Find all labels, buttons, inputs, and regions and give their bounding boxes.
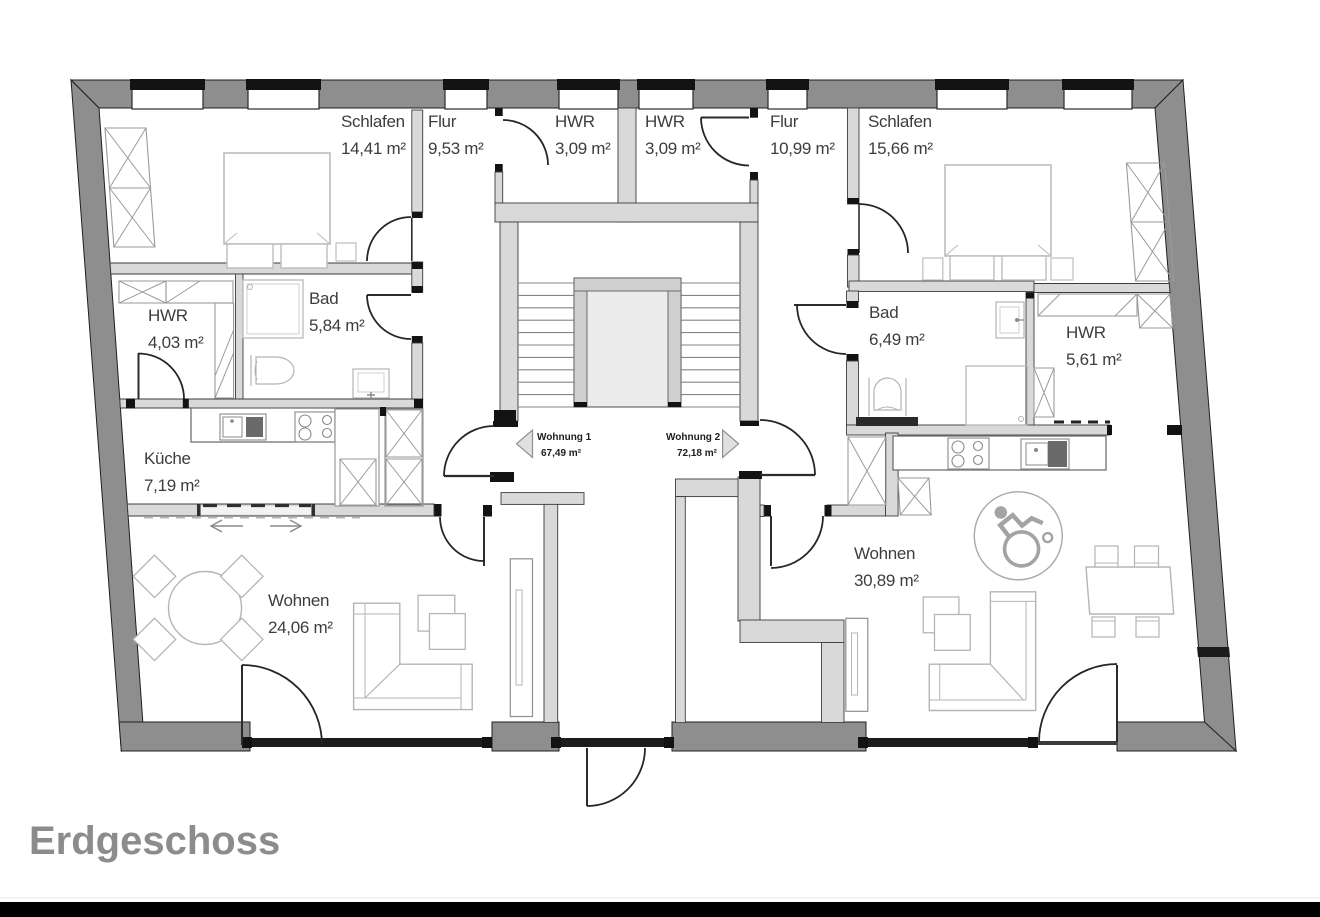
svg-text:Küche: Küche: [144, 449, 191, 468]
svg-text:Flur: Flur: [428, 112, 457, 131]
svg-text:72,18 m²: 72,18 m²: [677, 448, 718, 459]
svg-text:Erdgeschoss: Erdgeschoss: [29, 819, 280, 863]
svg-text:Schlafen: Schlafen: [868, 112, 932, 131]
svg-text:Wohnen: Wohnen: [854, 544, 915, 563]
svg-text:Schlafen: Schlafen: [341, 112, 405, 131]
svg-text:9,53 m²: 9,53 m²: [428, 139, 484, 158]
svg-text:Flur: Flur: [770, 112, 799, 131]
svg-text:Wohnung 2: Wohnung 2: [666, 432, 721, 443]
svg-text:5,84 m²: 5,84 m²: [309, 316, 365, 335]
svg-text:5,61 m²: 5,61 m²: [1066, 350, 1122, 369]
svg-text:Wohnen: Wohnen: [268, 591, 329, 610]
svg-text:HWR: HWR: [645, 112, 685, 131]
svg-text:4,03 m²: 4,03 m²: [148, 333, 204, 352]
svg-text:10,99 m²: 10,99 m²: [770, 139, 835, 158]
svg-text:HWR: HWR: [148, 306, 188, 325]
svg-text:Bad: Bad: [309, 289, 338, 308]
svg-text:HWR: HWR: [1066, 323, 1106, 342]
svg-text:Bad: Bad: [869, 303, 898, 322]
svg-text:Wohnung 1: Wohnung 1: [537, 432, 592, 443]
svg-text:HWR: HWR: [555, 112, 595, 131]
svg-text:6,49 m²: 6,49 m²: [869, 330, 925, 349]
svg-text:15,66 m²: 15,66 m²: [868, 139, 933, 158]
svg-text:30,89 m²: 30,89 m²: [854, 571, 919, 590]
svg-text:7,19 m²: 7,19 m²: [144, 476, 200, 495]
svg-text:3,09 m²: 3,09 m²: [645, 139, 701, 158]
svg-text:14,41 m²: 14,41 m²: [341, 139, 406, 158]
svg-text:3,09 m²: 3,09 m²: [555, 139, 611, 158]
svg-text:67,49 m²: 67,49 m²: [541, 448, 582, 459]
svg-text:24,06 m²: 24,06 m²: [268, 618, 333, 637]
